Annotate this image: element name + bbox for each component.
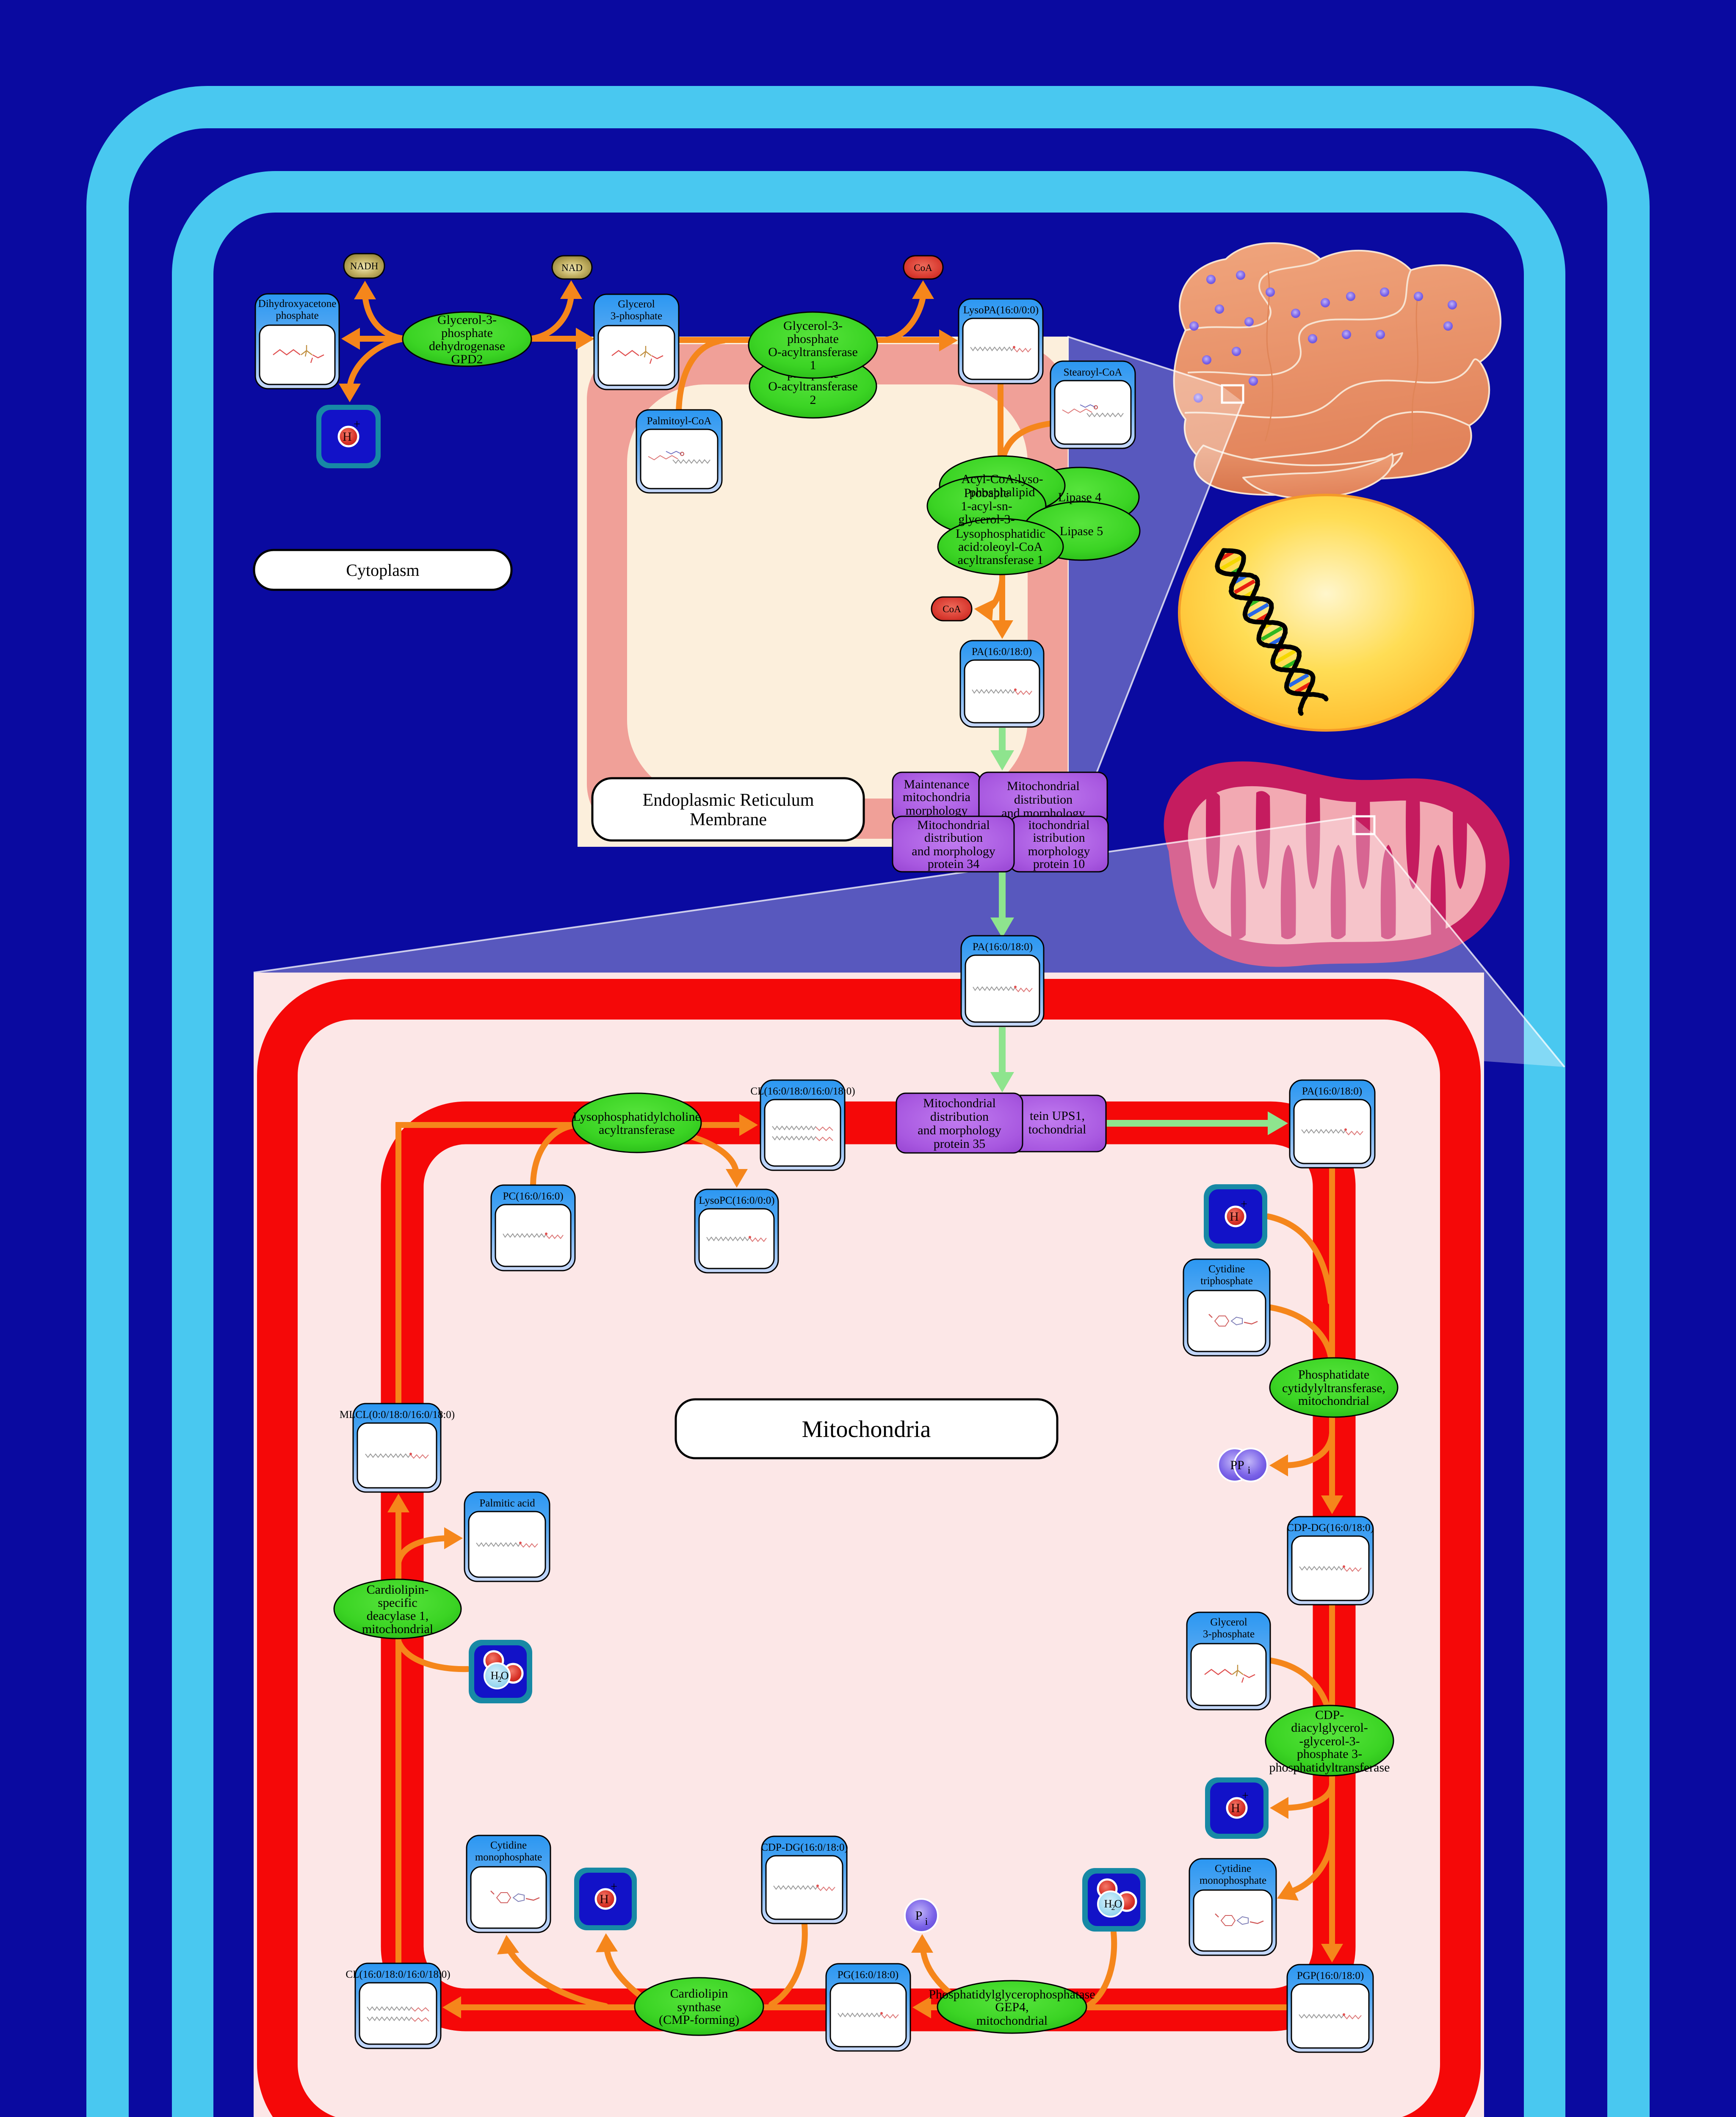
svg-text:Palmitoyl-CoA: Palmitoyl-CoA [647,415,712,427]
svg-text:and morphology: and morphology [912,844,995,858]
svg-text:glycerol-3-: glycerol-3- [958,512,1015,526]
svg-text:1-acyl-sn-: 1-acyl-sn- [961,499,1012,513]
svg-text:Lipase 5: Lipase 5 [1060,524,1103,538]
svg-text:mitochondrial: mitochondrial [362,1622,433,1636]
svg-text:tochondrial: tochondrial [1028,1122,1086,1136]
svg-text:monophosphate: monophosphate [1200,1875,1266,1886]
svg-text:Mitochondrial: Mitochondrial [923,1096,996,1110]
svg-text:Cytidine: Cytidine [1215,1863,1251,1874]
svg-text:phosphate: phosphate [441,326,493,340]
svg-text:Glycerol-3-: Glycerol-3- [783,319,843,333]
svg-text:distribution: distribution [1014,793,1073,807]
svg-text:-glycerol-3-: -glycerol-3- [1299,1734,1360,1748]
svg-text:CL(16:0/18:0/16:0/18:0): CL(16:0/18:0/16:0/18:0) [346,1969,450,1980]
svg-text:+: + [354,418,360,431]
svg-text:O-acyltransferase: O-acyltransferase [768,345,858,359]
svg-text:CDP-DG(16:0/18:0): CDP-DG(16:0/18:0) [1287,1522,1374,1534]
svg-text:MLCL(0:0/18:0/16:0/18:0): MLCL(0:0/18:0/16:0/18:0) [340,1409,455,1421]
svg-text:+: + [1241,1198,1247,1211]
svg-text:(CMP-forming): (CMP-forming) [659,2013,739,2027]
svg-text:mitochondrial: mitochondrial [976,2014,1048,2028]
svg-text:phosphate: phosphate [787,332,839,346]
svg-text:1: 1 [810,358,816,372]
svg-text:Glycerol: Glycerol [1210,1617,1247,1628]
svg-text:Maintenance: Maintenance [904,777,970,791]
svg-text:H: H [1231,1801,1240,1815]
svg-text:diacylglycerol-: diacylglycerol- [1291,1721,1368,1735]
svg-text:cytidylyltransferase,: cytidylyltransferase, [1282,1381,1385,1395]
svg-text:Glycerol: Glycerol [618,298,655,310]
svg-text:Cardiolipin: Cardiolipin [670,1987,728,2001]
svg-text:Phosphatidate: Phosphatidate [1298,1368,1369,1382]
svg-text:NADH: NADH [350,261,378,271]
svg-text:PC(16:0/16:0): PC(16:0/16:0) [503,1191,563,1202]
svg-text:+: + [611,1880,617,1893]
svg-text:LysoPC(16:0/0:0): LysoPC(16:0/0:0) [699,1195,774,1206]
svg-text:PA(16:0/18:0): PA(16:0/18:0) [1302,1086,1362,1097]
svg-text:Mitochondria: Mitochondria [802,1416,931,1443]
svg-text:H: H [1230,1210,1239,1224]
svg-text:H: H [600,1892,609,1906]
svg-text:Phosphatidylglycerophosphatase: Phosphatidylglycerophosphatase [929,1987,1095,2001]
svg-text:CDP-: CDP- [1315,1708,1344,1722]
svg-text:CoA: CoA [914,263,932,273]
svg-text:H: H [343,430,352,444]
svg-text:morphology: morphology [906,804,968,818]
svg-text:GEP4,: GEP4, [995,2000,1028,2014]
svg-text:protein 34: protein 34 [928,857,979,871]
svg-text:3-phosphate: 3-phosphate [611,310,662,322]
svg-text:Dihydroxyacetone: Dihydroxyacetone [258,298,337,310]
svg-text:Glycerol-3-: Glycerol-3- [437,313,497,327]
svg-text:specific: specific [378,1596,417,1610]
svg-text:protein 35: protein 35 [934,1137,985,1151]
svg-text:Cytidine: Cytidine [1208,1263,1245,1275]
svg-text:PA(16:0/18:0): PA(16:0/18:0) [972,646,1032,658]
svg-text:i: i [925,1916,928,1927]
svg-text:acyltransferase: acyltransferase [599,1123,675,1137]
svg-text:3-phosphate: 3-phosphate [1203,1628,1255,1640]
svg-text:Lysophosphatidic: Lysophosphatidic [956,527,1045,541]
svg-text:and morphology: and morphology [918,1123,1001,1137]
svg-text:O: O [501,1669,509,1682]
svg-text:Cytoplasm: Cytoplasm [346,561,419,580]
svg-text:Mitochondrial: Mitochondrial [917,818,990,832]
svg-text:LysoPA(16:0/0:0): LysoPA(16:0/0:0) [963,304,1039,316]
svg-text:Membrane: Membrane [690,810,767,829]
svg-text:O-acyltransferase: O-acyltransferase [768,379,858,393]
svg-text:mitochondrial: mitochondrial [1298,1394,1369,1408]
svg-text:Stearoyl-CoA: Stearoyl-CoA [1064,367,1122,378]
svg-text:dehydrogenase: dehydrogenase [429,339,505,353]
svg-text:+: + [1242,1789,1249,1802]
svg-text:Cardiolipin-: Cardiolipin- [367,1583,429,1597]
svg-text:CDP-DG(16:0/18:0): CDP-DG(16:0/18:0) [761,1842,848,1853]
svg-text:acid:oleoyl-CoA: acid:oleoyl-CoA [958,540,1043,554]
svg-text:deacylase 1,: deacylase 1, [367,1609,429,1623]
svg-text:istribution: istribution [1033,831,1085,845]
svg-text:CL(16:0/18:0/16:0/18:0): CL(16:0/18:0/16:0/18:0) [750,1086,855,1097]
svg-text:O: O [1114,1898,1122,1910]
svg-text:CoA: CoA [943,604,961,614]
svg-text:Mitochondrial: Mitochondrial [1007,779,1080,793]
svg-text:mitochondria: mitochondria [903,790,970,804]
svg-text:2: 2 [810,393,816,407]
svg-text:PGP(16:0/18:0): PGP(16:0/18:0) [1297,1970,1364,1982]
svg-text:triphosphate: triphosphate [1200,1275,1253,1287]
svg-text:PA(16:0/18:0): PA(16:0/18:0) [973,941,1033,953]
svg-text:Palmitic acid: Palmitic acid [479,1498,535,1509]
svg-text:NAD: NAD [561,263,583,273]
svg-text:tein UPS1,: tein UPS1, [1030,1109,1085,1123]
svg-text:itochondrial: itochondrial [1028,818,1090,832]
svg-text:distribution: distribution [930,1110,989,1124]
svg-text:P: P [915,1909,923,1923]
svg-text:monophosphate: monophosphate [475,1852,542,1863]
svg-text:Cytidine: Cytidine [490,1840,527,1851]
svg-text:GPD2: GPD2 [451,352,483,366]
svg-text:distribution: distribution [924,831,983,845]
svg-text:Probable: Probable [964,486,1009,500]
svg-text:Lipase 4: Lipase 4 [1058,490,1101,504]
svg-text:phosphatidyltransferase: phosphatidyltransferase [1269,1760,1390,1774]
svg-text:morphology: morphology [1028,844,1090,858]
svg-text:Lysophosphatidylcholine: Lysophosphatidylcholine [573,1110,701,1124]
svg-text:Acyl-CoA:lyso-: Acyl-CoA:lyso- [961,472,1043,486]
svg-text:synthase: synthase [677,2000,721,2014]
svg-text:PP: PP [1230,1458,1244,1472]
svg-text:phosphate 3-: phosphate 3- [1297,1747,1362,1761]
svg-text:phosphate: phosphate [276,310,318,321]
svg-text:PG(16:0/18:0): PG(16:0/18:0) [838,1969,898,1981]
svg-text:protein 10: protein 10 [1033,857,1085,871]
svg-text:acyltransferase 1: acyltransferase 1 [958,553,1043,567]
svg-text:Endoplasmic Reticulum: Endoplasmic Reticulum [643,790,814,810]
svg-text:i: i [1248,1465,1251,1476]
